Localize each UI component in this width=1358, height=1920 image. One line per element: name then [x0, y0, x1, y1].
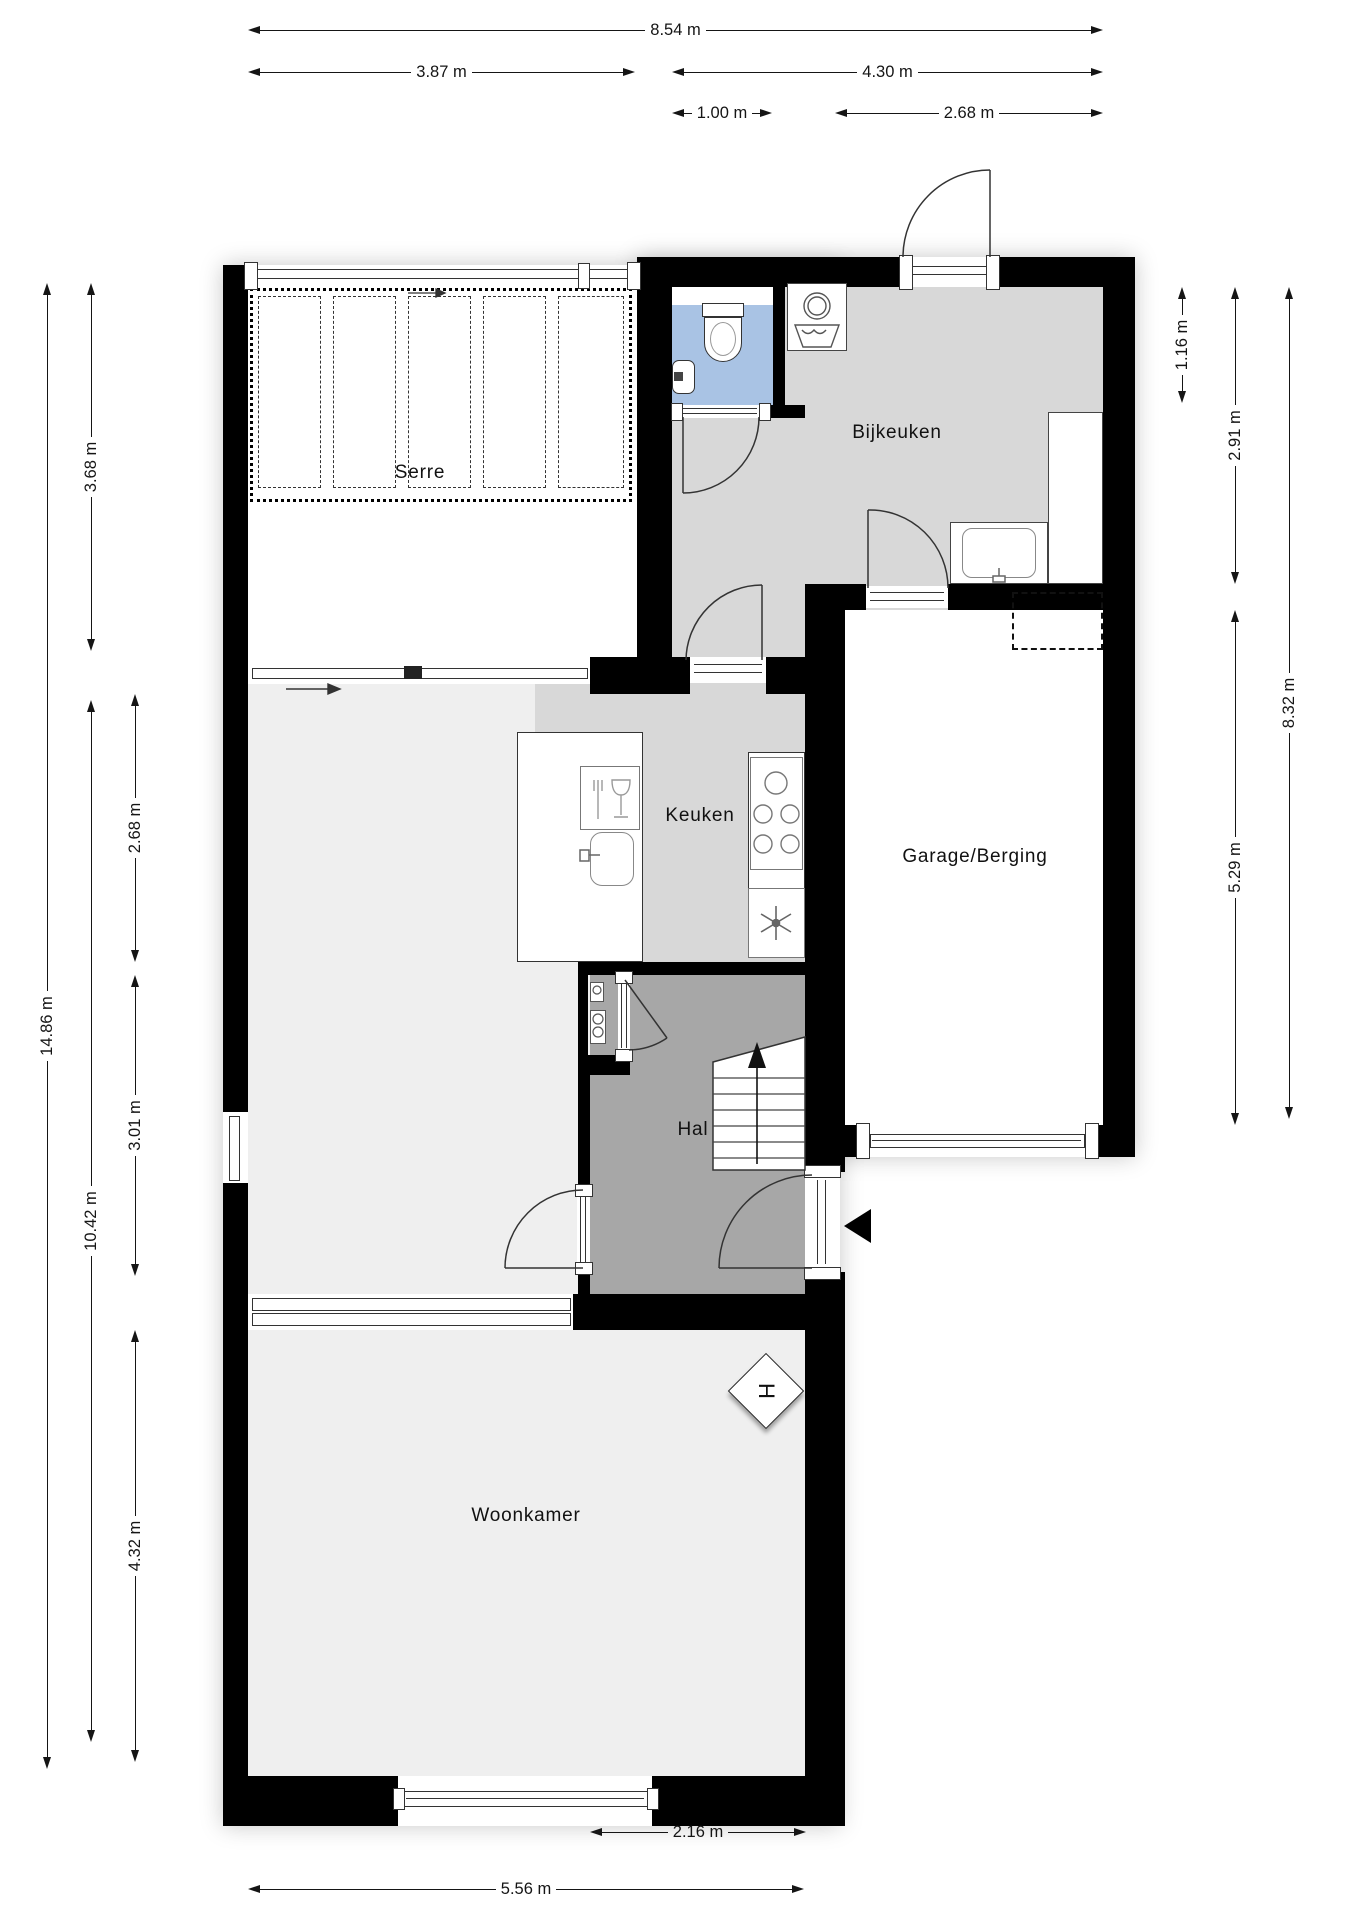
sliding-divider-glass	[252, 1313, 571, 1326]
serre-roof-panel	[333, 296, 396, 488]
dim-height-right-total: 8.32 m	[1281, 287, 1297, 1119]
dim-height-lower-section: 10.42 m	[83, 700, 99, 1742]
door-threshold-bijkeuken-garage	[866, 586, 948, 608]
meter-cabinet-door-threshold	[618, 980, 630, 1052]
wall-segment	[637, 265, 672, 660]
door-jamb	[671, 403, 683, 421]
window-jamb	[578, 263, 590, 289]
dim-width-total: 8.54 m	[248, 22, 1103, 38]
floor-woonkamer	[248, 1330, 805, 1776]
threshold-line	[825, 1180, 826, 1264]
window-jamb	[244, 262, 258, 290]
meter-box	[590, 982, 604, 1002]
wall-segment	[773, 257, 785, 418]
dim-height-garage: 5.29 m	[1227, 610, 1243, 1125]
room-label-bijkeuken: Bijkeuken	[852, 422, 942, 444]
threshold-line	[872, 1140, 1081, 1141]
wall-segment	[637, 257, 905, 287]
threshold-line	[580, 1196, 581, 1262]
wall-segment	[672, 657, 690, 694]
entrance-arrow-icon	[844, 1209, 871, 1243]
wall-segment	[1103, 257, 1135, 1157]
door-jamb	[986, 255, 1000, 290]
toilet-cistern	[702, 303, 744, 317]
door-jamb	[615, 971, 633, 984]
dim-width-serre: 3.87 m	[248, 64, 635, 80]
garage-roof-opening	[1012, 592, 1103, 650]
threshold-line	[626, 984, 627, 1048]
dim-height-total: 14.86 m	[39, 283, 55, 1769]
threshold-line	[683, 408, 757, 409]
wall-segment	[223, 1776, 398, 1826]
door-jamb	[575, 1262, 593, 1275]
wall-segment	[578, 1075, 590, 1192]
door-threshold-hal-room	[577, 1192, 590, 1266]
window-glass-line	[406, 1798, 644, 1799]
serre-roof-panel	[483, 296, 546, 488]
window-jamb	[647, 1788, 659, 1810]
threshold-line	[870, 600, 944, 601]
window-serre-top-glass	[252, 269, 633, 279]
room-label-woonkamer: Woonkamer	[471, 1505, 580, 1527]
window-jamb	[393, 1788, 405, 1810]
door-swing-back-entrance	[903, 170, 990, 257]
serre-roof-panel	[258, 296, 321, 488]
dim-width-hal: 2.16 m	[590, 1824, 806, 1840]
door-jamb	[856, 1123, 870, 1159]
door-jamb	[1085, 1123, 1099, 1159]
threshold-line	[694, 664, 762, 665]
wall-segment	[652, 1776, 840, 1826]
cooktop	[750, 757, 803, 870]
door-threshold-bijkeuken-keuken	[690, 657, 766, 683]
door-jamb	[804, 1267, 841, 1280]
door-jamb	[899, 255, 913, 290]
door-jamb	[575, 1184, 593, 1197]
tall-cabinet	[1048, 412, 1103, 584]
dim-height-woonkamer: 4.32 m	[127, 1330, 143, 1762]
dim-height-serre: 3.68 m	[83, 283, 99, 651]
meter-box	[590, 1010, 606, 1044]
door-jamb	[804, 1165, 841, 1178]
hand-basin-tap	[674, 372, 683, 381]
wall-segment	[223, 265, 248, 1112]
wall-segment	[573, 1294, 840, 1330]
door-threshold-back-entrance	[905, 259, 993, 285]
dim-width-toilet: 1.00 m	[672, 105, 772, 121]
threshold-line	[870, 592, 944, 593]
toilet-bowl-inner	[710, 322, 736, 356]
wall-segment	[578, 973, 588, 1055]
kitchen-sink	[590, 832, 634, 886]
window-left-wall-glass	[229, 1116, 240, 1181]
window-woonkamer-bottom-glass	[404, 1791, 648, 1807]
threshold-line	[621, 984, 622, 1048]
threshold-line	[909, 274, 989, 275]
wall-segment	[223, 1183, 248, 1826]
room-label-garage: Garage/Berging	[902, 846, 1047, 868]
door-jamb	[615, 1049, 633, 1062]
dishwasher	[580, 766, 640, 830]
floorplan-canvas: H Serre Bijkeuken Keuken Garage/Berging …	[0, 0, 1358, 1920]
threshold-line	[694, 672, 762, 673]
serre-roof-panel	[558, 296, 624, 488]
fireplace-letter: H	[753, 1383, 779, 1399]
wall-segment	[805, 584, 845, 1125]
threshold-line	[585, 1196, 586, 1262]
dim-width-bijkeuken: 2.68 m	[835, 105, 1103, 121]
threshold-line	[909, 266, 989, 267]
dim-height-toilet: 1.16 m	[1174, 287, 1190, 403]
dim-height-bijkeuken: 2.91 m	[1227, 287, 1243, 584]
dim-width-right-section: 4.30 m	[672, 64, 1103, 80]
door-jamb	[759, 403, 771, 421]
window-jamb	[627, 262, 641, 290]
washing-machine	[787, 283, 847, 351]
threshold-line	[817, 1180, 818, 1264]
serre-roof-panel	[408, 296, 471, 488]
garage-door-panel	[870, 1134, 1085, 1148]
wall-segment	[820, 1125, 860, 1157]
wall-segment	[805, 1272, 845, 1826]
sliding-divider-glass	[252, 1298, 571, 1311]
room-label-keuken: Keuken	[665, 805, 734, 827]
room-label-serre: Serre	[395, 462, 445, 484]
wall-segment	[1093, 1125, 1135, 1157]
dim-height-zone2: 3.01 m	[127, 975, 143, 1276]
dim-width-woonkamer: 5.56 m	[248, 1881, 804, 1897]
sliding-door-handle	[404, 666, 422, 679]
wall-segment	[578, 962, 805, 975]
utility-sink	[962, 528, 1036, 578]
extractor-fan-box	[748, 888, 805, 958]
wall-segment	[590, 657, 672, 694]
floor-bijkeuken-lower	[672, 418, 805, 694]
threshold-line	[683, 413, 757, 414]
room-label-hal: Hal	[678, 1119, 709, 1141]
front-door-threshold	[806, 1174, 839, 1270]
dim-height-zone1: 2.68 m	[127, 694, 143, 962]
